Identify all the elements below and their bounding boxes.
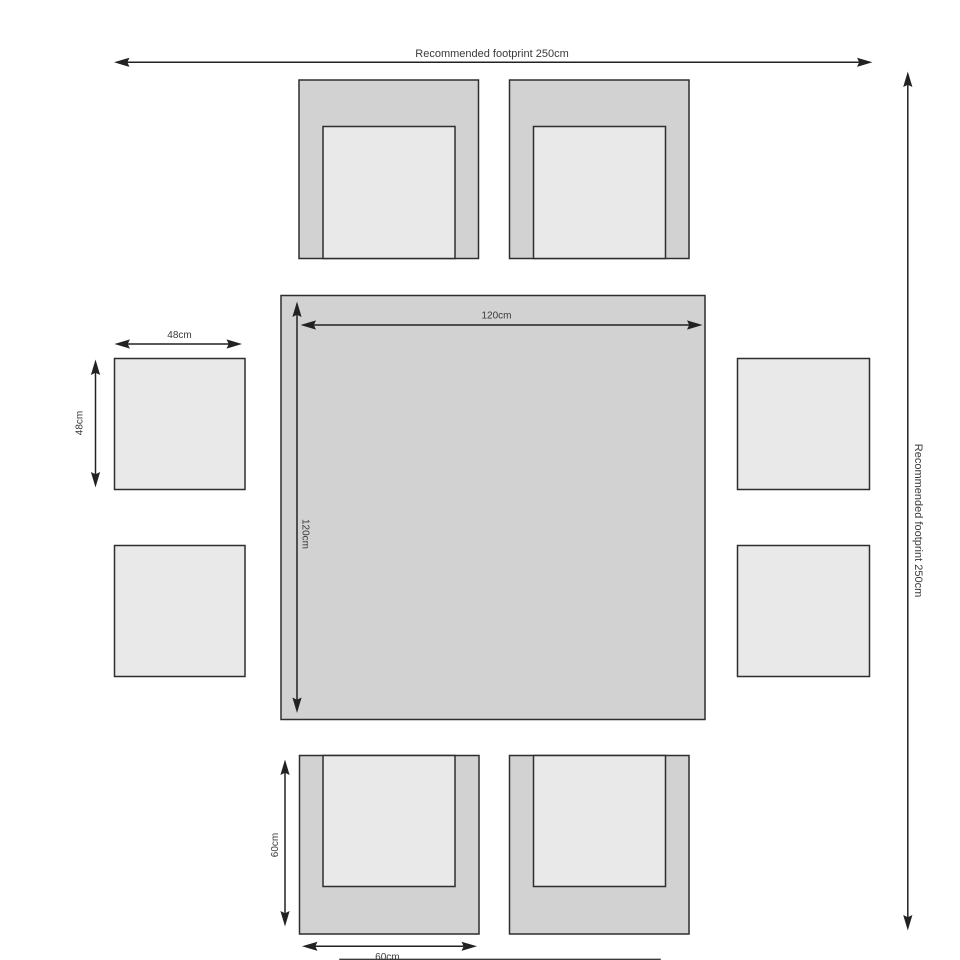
svg-text:Recommended footprint 250cm: Recommended footprint 250cm (912, 444, 924, 597)
svg-text:Recommended footprint 250cm: Recommended footprint 250cm (415, 48, 568, 60)
svg-text:60cm: 60cm (270, 833, 281, 857)
svg-text:120cm: 120cm (300, 519, 311, 549)
svg-text:48cm: 48cm (75, 411, 86, 435)
svg-text:120cm: 120cm (481, 311, 511, 322)
svg-text:48cm: 48cm (167, 330, 191, 341)
